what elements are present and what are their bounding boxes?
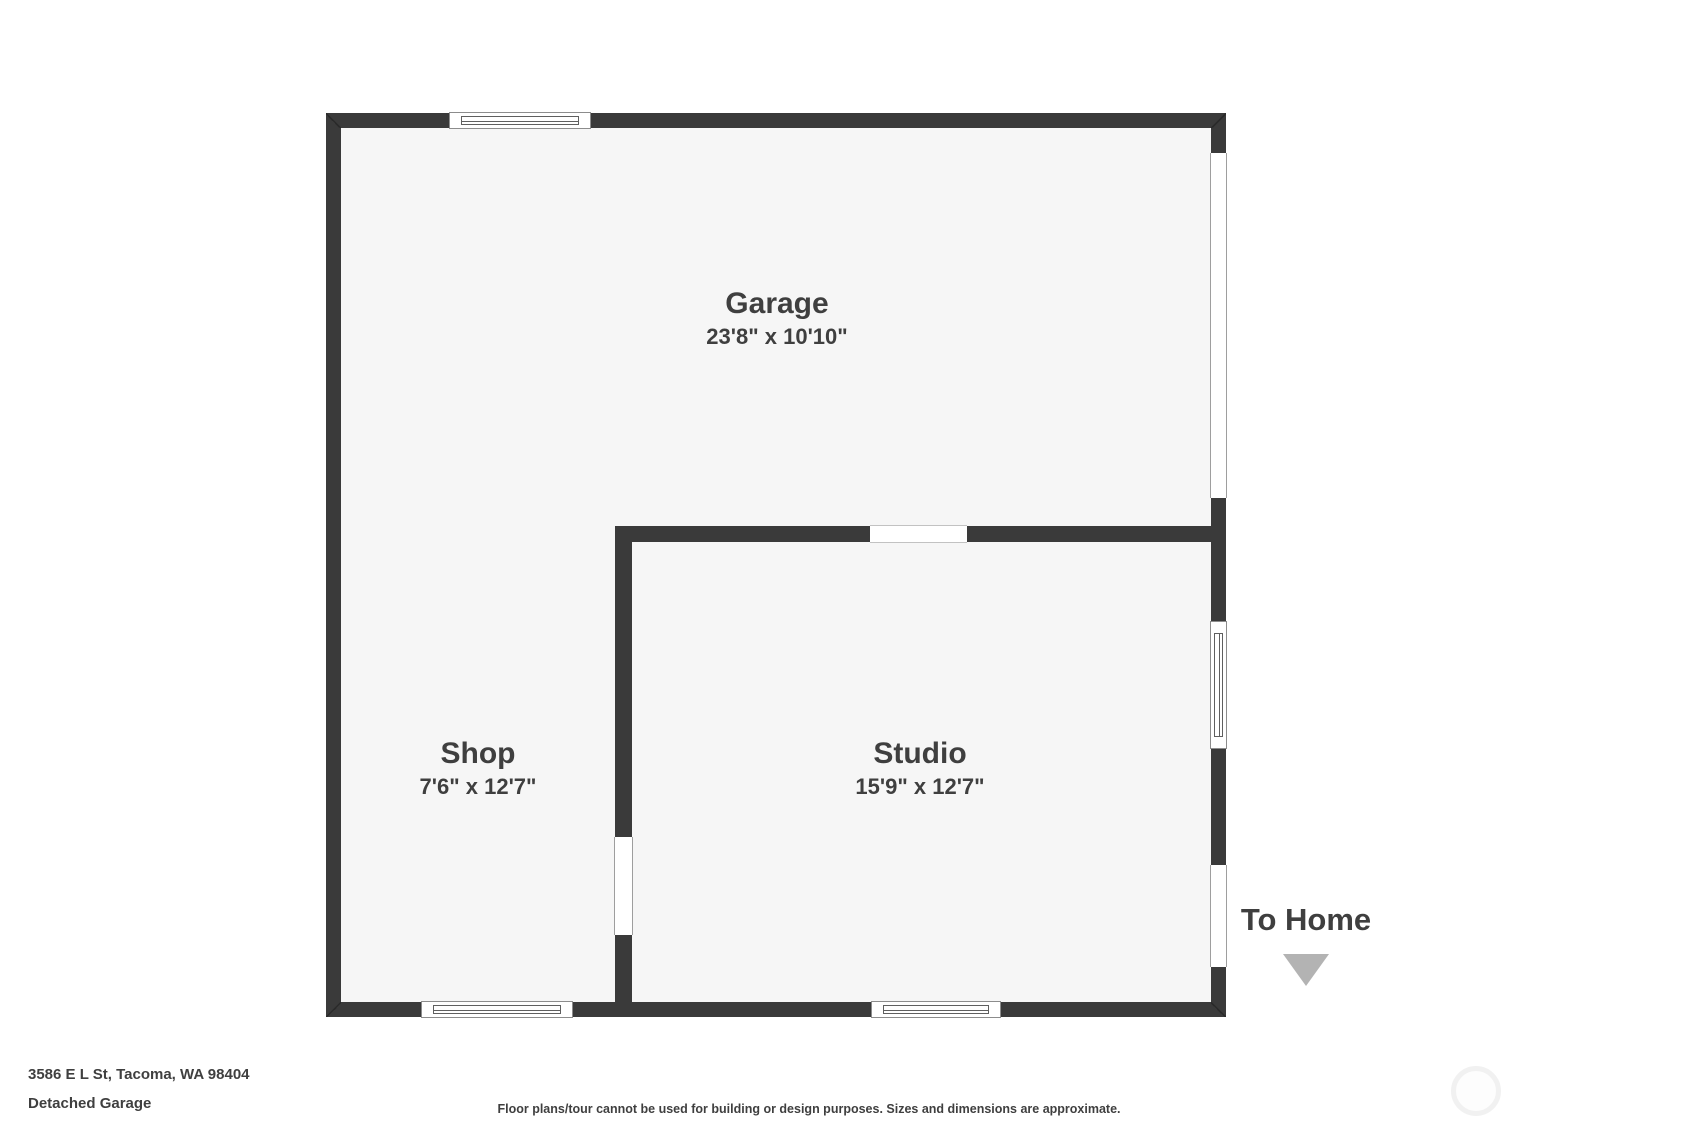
floorplan-page: { "plan": { "rooms": [ { "name": "Garage… xyxy=(0,0,1697,1131)
window-studio-bottom xyxy=(871,1001,1001,1018)
room-label-garage: Garage 23'8" x 10'10" xyxy=(577,287,977,350)
corner-miter xyxy=(1211,113,1226,128)
footer-address: 3586 E L St, Tacoma, WA 98404 xyxy=(28,1066,250,1084)
corner-miter xyxy=(1211,1002,1226,1017)
window-garage-top xyxy=(449,112,591,129)
room-label-shop: Shop 7'6" x 12'7" xyxy=(328,737,628,800)
footer-plan-title: Detached Garage xyxy=(28,1095,151,1113)
room-dimensions: 15'9" x 12'7" xyxy=(770,774,1070,800)
floor-area xyxy=(341,128,1211,1002)
room-label-studio: Studio 15'9" x 12'7" xyxy=(770,737,1070,800)
room-dimensions: 7'6" x 12'7" xyxy=(328,774,628,800)
window-pane xyxy=(433,1005,561,1014)
room-dimensions: 23'8" x 10'10" xyxy=(577,324,977,350)
window-pane xyxy=(461,116,579,125)
floorplan-canvas: Garage 23'8" x 10'10" Shop 7'6" x 12'7" … xyxy=(0,0,1697,1131)
room-name: Studio xyxy=(770,737,1070,771)
triangle-down-icon xyxy=(1283,954,1329,986)
room-name: Shop xyxy=(328,737,628,771)
doorway-shop-studio xyxy=(614,837,633,935)
garage-door-opening xyxy=(1210,153,1227,498)
footer-disclaimer: Floor plans/tour cannot be used for buil… xyxy=(409,1102,1209,1116)
to-home-label: To Home xyxy=(1181,902,1431,938)
corner-miter xyxy=(326,113,341,128)
watermark-logo xyxy=(1451,1066,1501,1116)
corner-miter xyxy=(326,1002,341,1017)
window-studio-right xyxy=(1210,621,1227,749)
window-pane xyxy=(1214,633,1223,737)
room-name: Garage xyxy=(577,287,977,321)
wall-left xyxy=(326,113,341,1017)
to-home-annotation: To Home xyxy=(1181,902,1431,986)
window-shop-bottom xyxy=(421,1001,573,1018)
window-pane xyxy=(883,1005,989,1014)
doorway-garage-studio xyxy=(870,525,967,543)
